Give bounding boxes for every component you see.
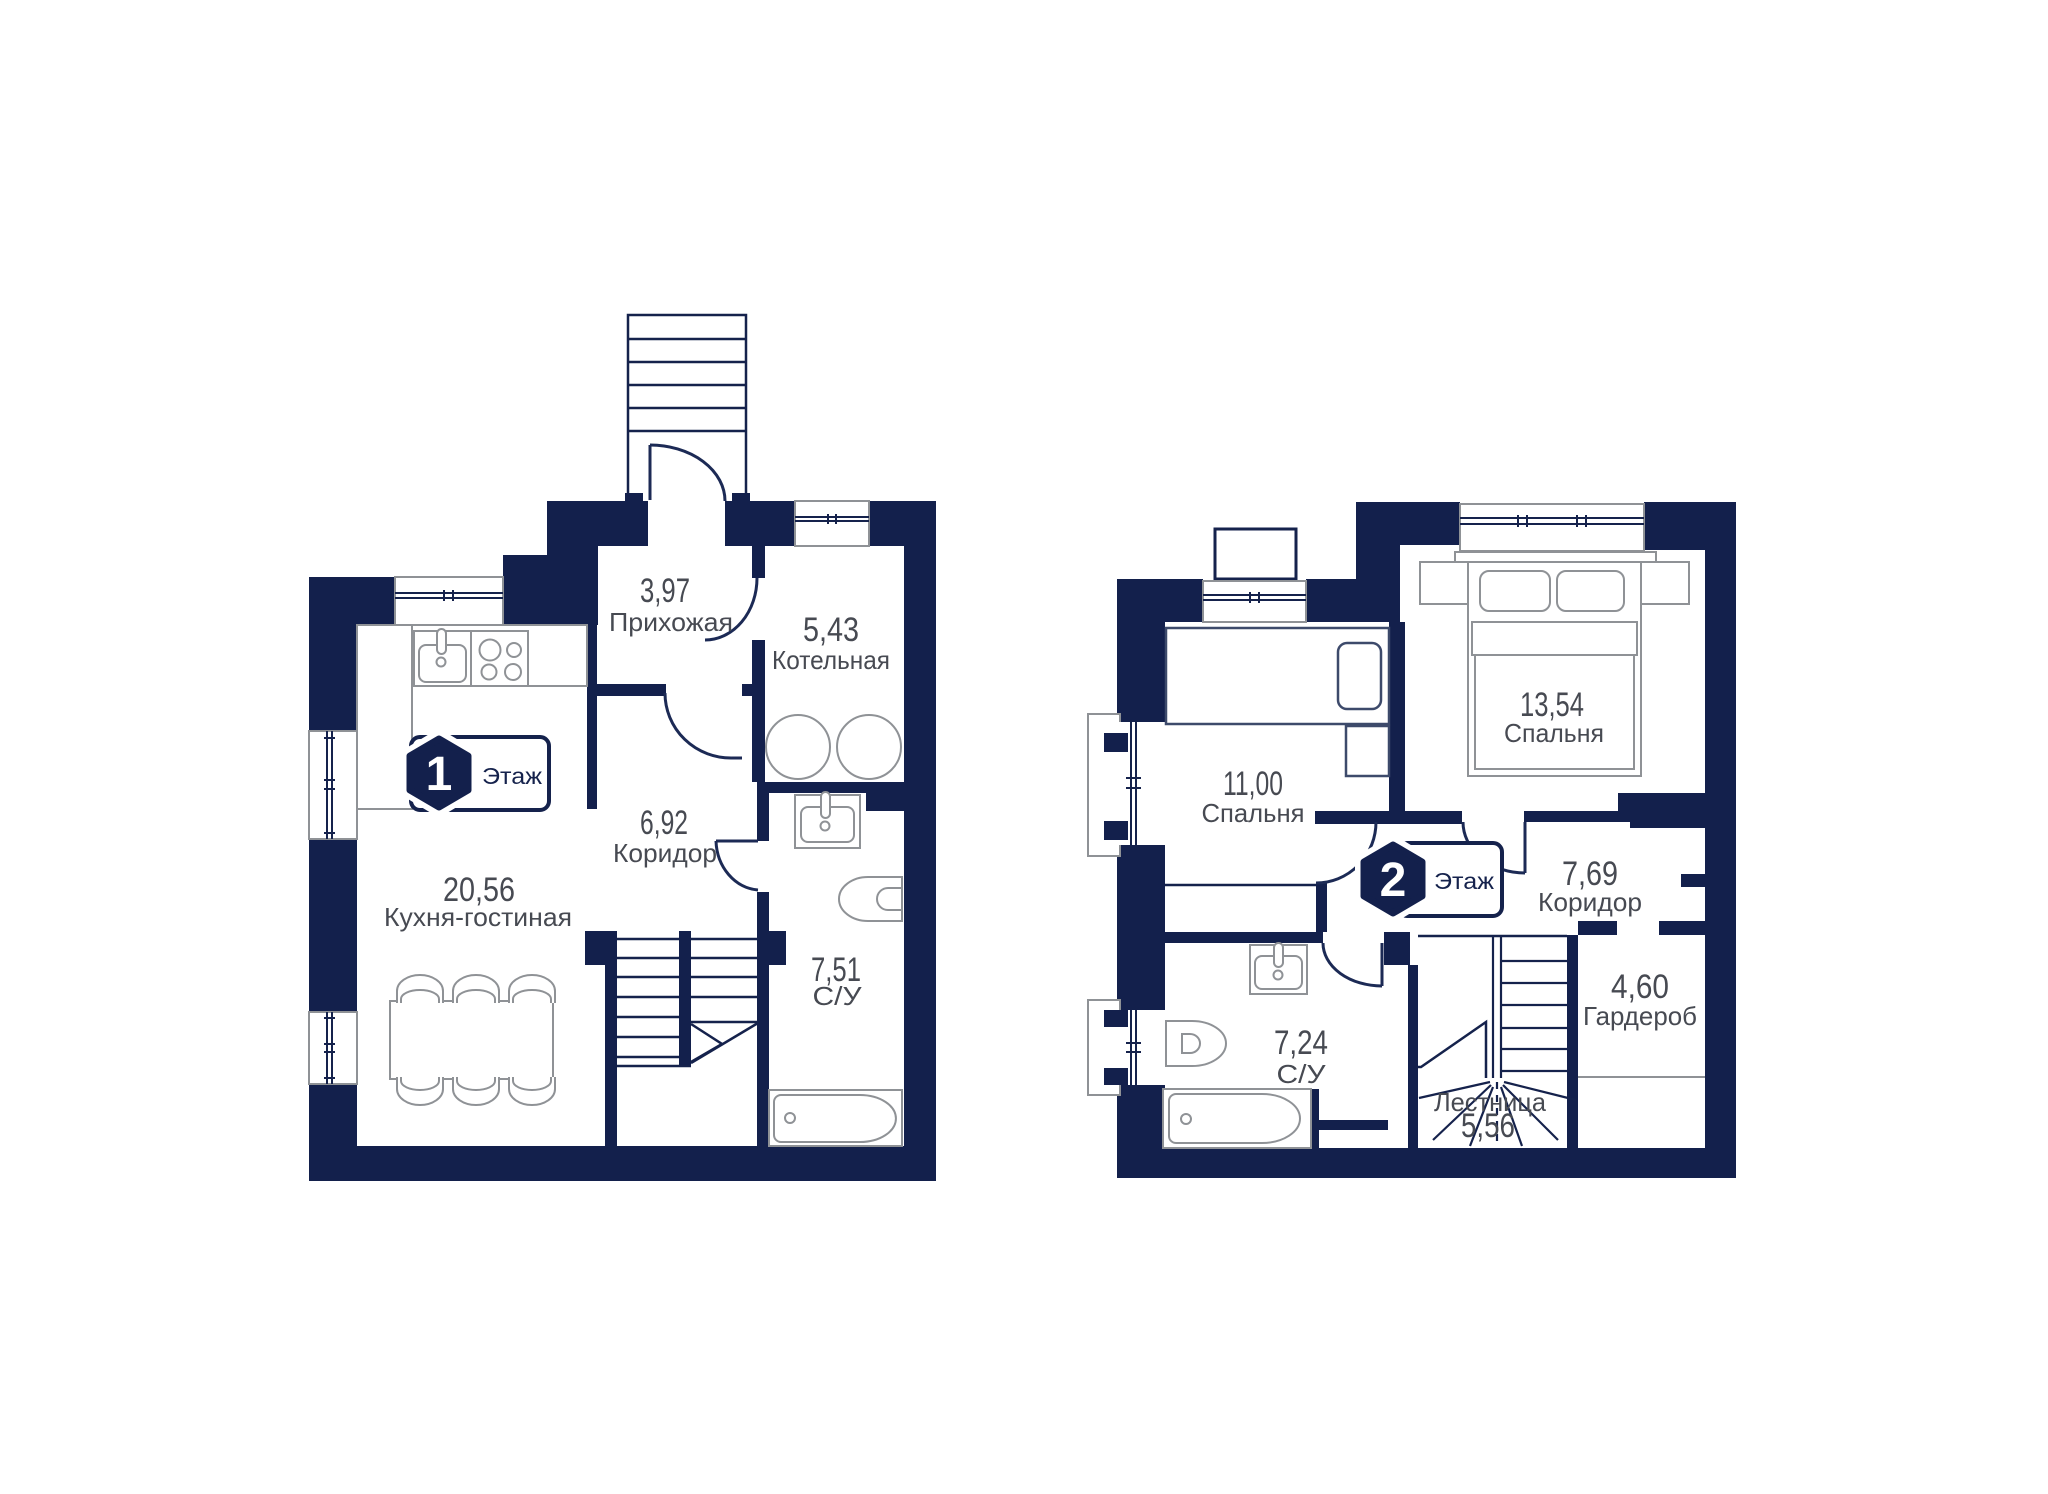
- svg-text:6,92: 6,92: [640, 804, 688, 842]
- svg-text:Этаж: Этаж: [482, 763, 543, 789]
- svg-text:С/У: С/У: [1277, 1059, 1327, 1089]
- svg-text:2: 2: [1380, 854, 1407, 907]
- svg-text:Гардероб: Гардероб: [1583, 1001, 1697, 1031]
- svg-text:5,43: 5,43: [803, 611, 859, 649]
- svg-text:7,24: 7,24: [1274, 1024, 1328, 1062]
- svg-text:Прихожая: Прихожая: [609, 607, 733, 637]
- svg-text:Спальня: Спальня: [1504, 718, 1604, 748]
- svg-text:3,97: 3,97: [640, 572, 690, 610]
- svg-text:Коридор: Коридор: [613, 838, 717, 868]
- svg-text:5,56: 5,56: [1461, 1107, 1515, 1145]
- svg-text:Коридор: Коридор: [1538, 887, 1642, 917]
- svg-text:С/У: С/У: [813, 981, 863, 1011]
- svg-text:Спальня: Спальня: [1202, 798, 1305, 828]
- svg-text:1: 1: [426, 748, 453, 801]
- svg-text:Этаж: Этаж: [1434, 868, 1495, 894]
- svg-text:Котельная: Котельная: [772, 645, 890, 675]
- svg-text:Кухня-гостиная: Кухня-гостиная: [384, 902, 572, 932]
